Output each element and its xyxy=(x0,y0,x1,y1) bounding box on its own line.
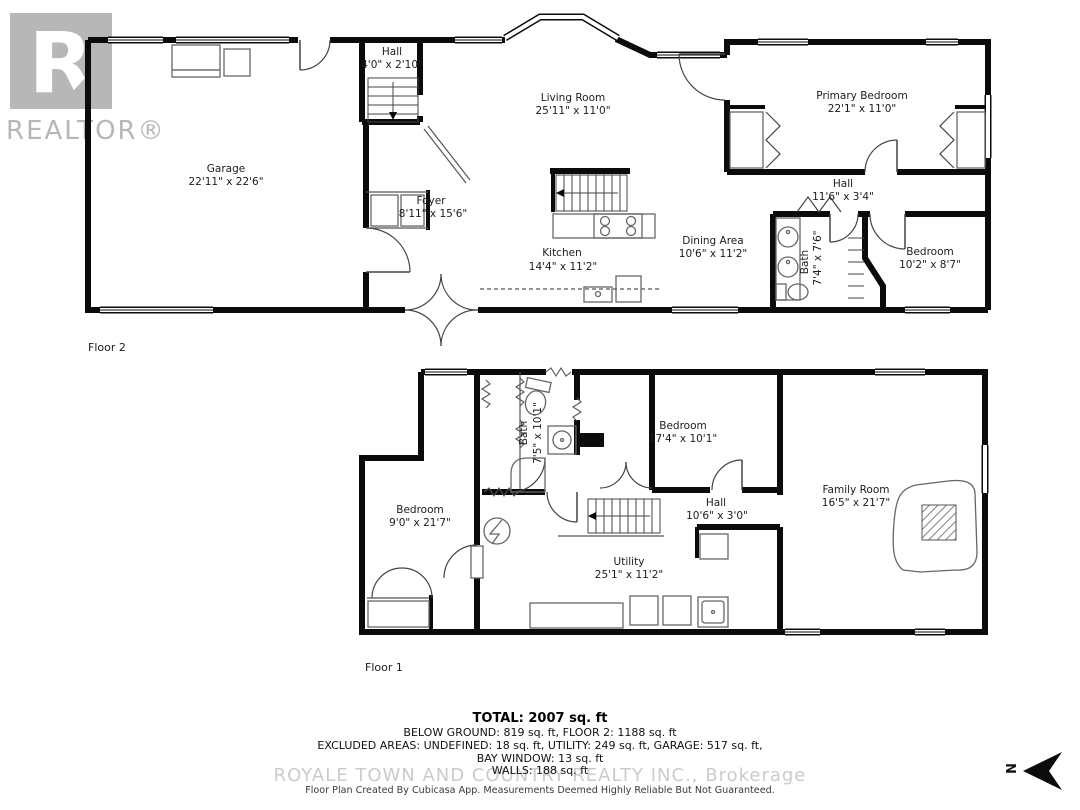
room-label-hall-top: Hall4'0" x 2'10" xyxy=(361,46,423,71)
room-name: Bedroom xyxy=(659,420,707,432)
summary-areas: BELOW GROUND: 819 sq. ft, FLOOR 2: 1188 … xyxy=(403,726,677,739)
dryer-icon xyxy=(663,596,691,625)
room-dims: 4'0" x 2'10" xyxy=(361,59,423,71)
floor1-room-labels: Bath7'5" x 10'1" Bedroom17'4" x 10'1" Be… xyxy=(389,402,890,581)
fireplace-icon xyxy=(893,481,977,573)
room-label-garage: Garage22'11" x 22'6" xyxy=(188,163,263,188)
room-dims: 10'6" x 11'2" xyxy=(679,248,747,260)
room-name: Bedroom xyxy=(906,246,954,258)
room-label-bedroom-mid: Bedroom17'4" x 10'1" xyxy=(649,420,717,445)
summary-block: ROYALE TOWN AND COUNTRY REALTY INC., Bro… xyxy=(274,711,807,796)
room-dims: 11'6" x 3'4" xyxy=(812,191,874,203)
stove-icon xyxy=(553,214,655,238)
sink-icon xyxy=(548,426,576,454)
washer-icon xyxy=(630,596,658,625)
room-dims: 9'0" x 21'7" xyxy=(389,517,451,529)
room-name: Family Room xyxy=(822,484,889,496)
room-dims: 22'1" x 11'0" xyxy=(828,103,896,115)
room-dims: 7'5" x 10'1" xyxy=(532,402,544,464)
room-label-bath2: Bath7'4" x 7'6" xyxy=(799,230,824,285)
room-dims: 16'5" x 21'7" xyxy=(822,497,890,509)
room-dims: 25'1" x 11'2" xyxy=(595,569,663,581)
room-dims: 10'6" x 3'0" xyxy=(686,510,748,522)
floor2-label: Floor 2 xyxy=(88,341,126,354)
utility-counter xyxy=(530,603,623,628)
room-name: Hall xyxy=(833,178,853,190)
north-arrow-icon: N xyxy=(1002,752,1062,790)
room-name: Foyer xyxy=(416,195,446,207)
summary-total: TOTAL: 2007 sq. ft xyxy=(473,711,608,726)
toilet-icon xyxy=(776,284,808,300)
room-label-utility: Utility25'1" x 11'2" xyxy=(595,556,663,581)
room-dims: 7'4" x 7'6" xyxy=(812,230,824,285)
bay-window xyxy=(505,17,618,38)
room-name: Kitchen xyxy=(542,247,581,259)
sink-icon xyxy=(778,227,798,247)
room-name: Hall xyxy=(706,497,726,509)
summary-disclaimer: Floor Plan Created By Cubicasa App. Meas… xyxy=(305,785,774,796)
stairs-icon xyxy=(556,175,627,211)
floor1-walls xyxy=(362,372,985,632)
primary-closets xyxy=(730,112,985,168)
room-name: Living Room xyxy=(541,92,605,104)
room-dims: 17'4" x 10'1" xyxy=(649,433,717,445)
room-label-foyer: Foyer8'11" x 15'6" xyxy=(399,195,467,220)
electrical-panel-icon xyxy=(484,518,510,544)
room-label-bedroom-left: Bedroom9'0" x 21'7" xyxy=(389,504,451,529)
floorplan-page: R REALTOR® xyxy=(0,0,1080,810)
room-dims: 10'2" x 8'7" xyxy=(899,259,961,271)
foyer-railing xyxy=(424,126,470,183)
room-label-dining-area: Dining Area10'6" x 11'2" xyxy=(679,235,747,260)
garage-cabinets xyxy=(172,45,250,77)
room-name: Bath xyxy=(799,250,811,274)
room-label-family-room: Family Room16'5" x 21'7" xyxy=(822,484,890,509)
room-name: Bath xyxy=(518,421,530,445)
sink-icon xyxy=(778,257,798,277)
summary-excluded: EXCLUDED AREAS: UNDEFINED: 18 sq. ft, UT… xyxy=(317,739,762,752)
floorplan-canvas: R REALTOR® xyxy=(0,0,1080,810)
room-dims: 25'11" x 11'0" xyxy=(535,105,610,117)
room-label-bath1: Bath7'5" x 10'1" xyxy=(518,402,544,464)
floor1-label: Floor 1 xyxy=(365,661,403,674)
stairs-icon xyxy=(848,238,864,298)
utility-box xyxy=(700,534,728,559)
floor2-plan: Hall4'0" x 2'10" Living Room25'11" x 11'… xyxy=(88,17,988,354)
room-dims: 14'4" x 11'2" xyxy=(529,261,597,273)
room-name: Utility xyxy=(614,556,645,568)
room-dims: 8'11" x 15'6" xyxy=(399,208,467,220)
kitchen-counter xyxy=(480,276,660,302)
room-name: Dining Area xyxy=(682,235,743,247)
room-label-kitchen: Kitchen14'4" x 11'2" xyxy=(529,247,597,273)
room-label-living-room: Living Room25'11" x 11'0" xyxy=(535,92,610,117)
room-name: Primary Bedroom xyxy=(816,90,907,102)
floor1-plan: Bath7'5" x 10'1" Bedroom17'4" x 10'1" Be… xyxy=(362,368,985,674)
bath-vanity xyxy=(776,218,800,300)
room-label-hall1: Hall10'6" x 3'0" xyxy=(686,497,748,522)
room-name: Hall xyxy=(382,46,402,58)
room-label-bedroom2: Bedroom10'2" x 8'7" xyxy=(899,246,961,271)
sink-icon xyxy=(698,597,728,627)
room-name: Garage xyxy=(207,163,245,175)
room-dims: 22'11" x 22'6" xyxy=(188,176,263,188)
floor2-room-labels: Hall4'0" x 2'10" Living Room25'11" x 11'… xyxy=(188,46,960,286)
room-label-hall-right: Hall11'6" x 3'4" xyxy=(812,178,874,203)
room-label-primary-bedroom: Primary Bedroom22'1" x 11'0" xyxy=(816,90,907,115)
stairs-icon xyxy=(558,499,664,536)
closet-shelf xyxy=(367,598,429,627)
stairs-icon xyxy=(368,78,418,122)
summary-walls: WALLS: 188 sq. ft xyxy=(492,764,589,777)
room-name: Bedroom xyxy=(396,504,444,516)
north-label: N xyxy=(1002,763,1017,774)
